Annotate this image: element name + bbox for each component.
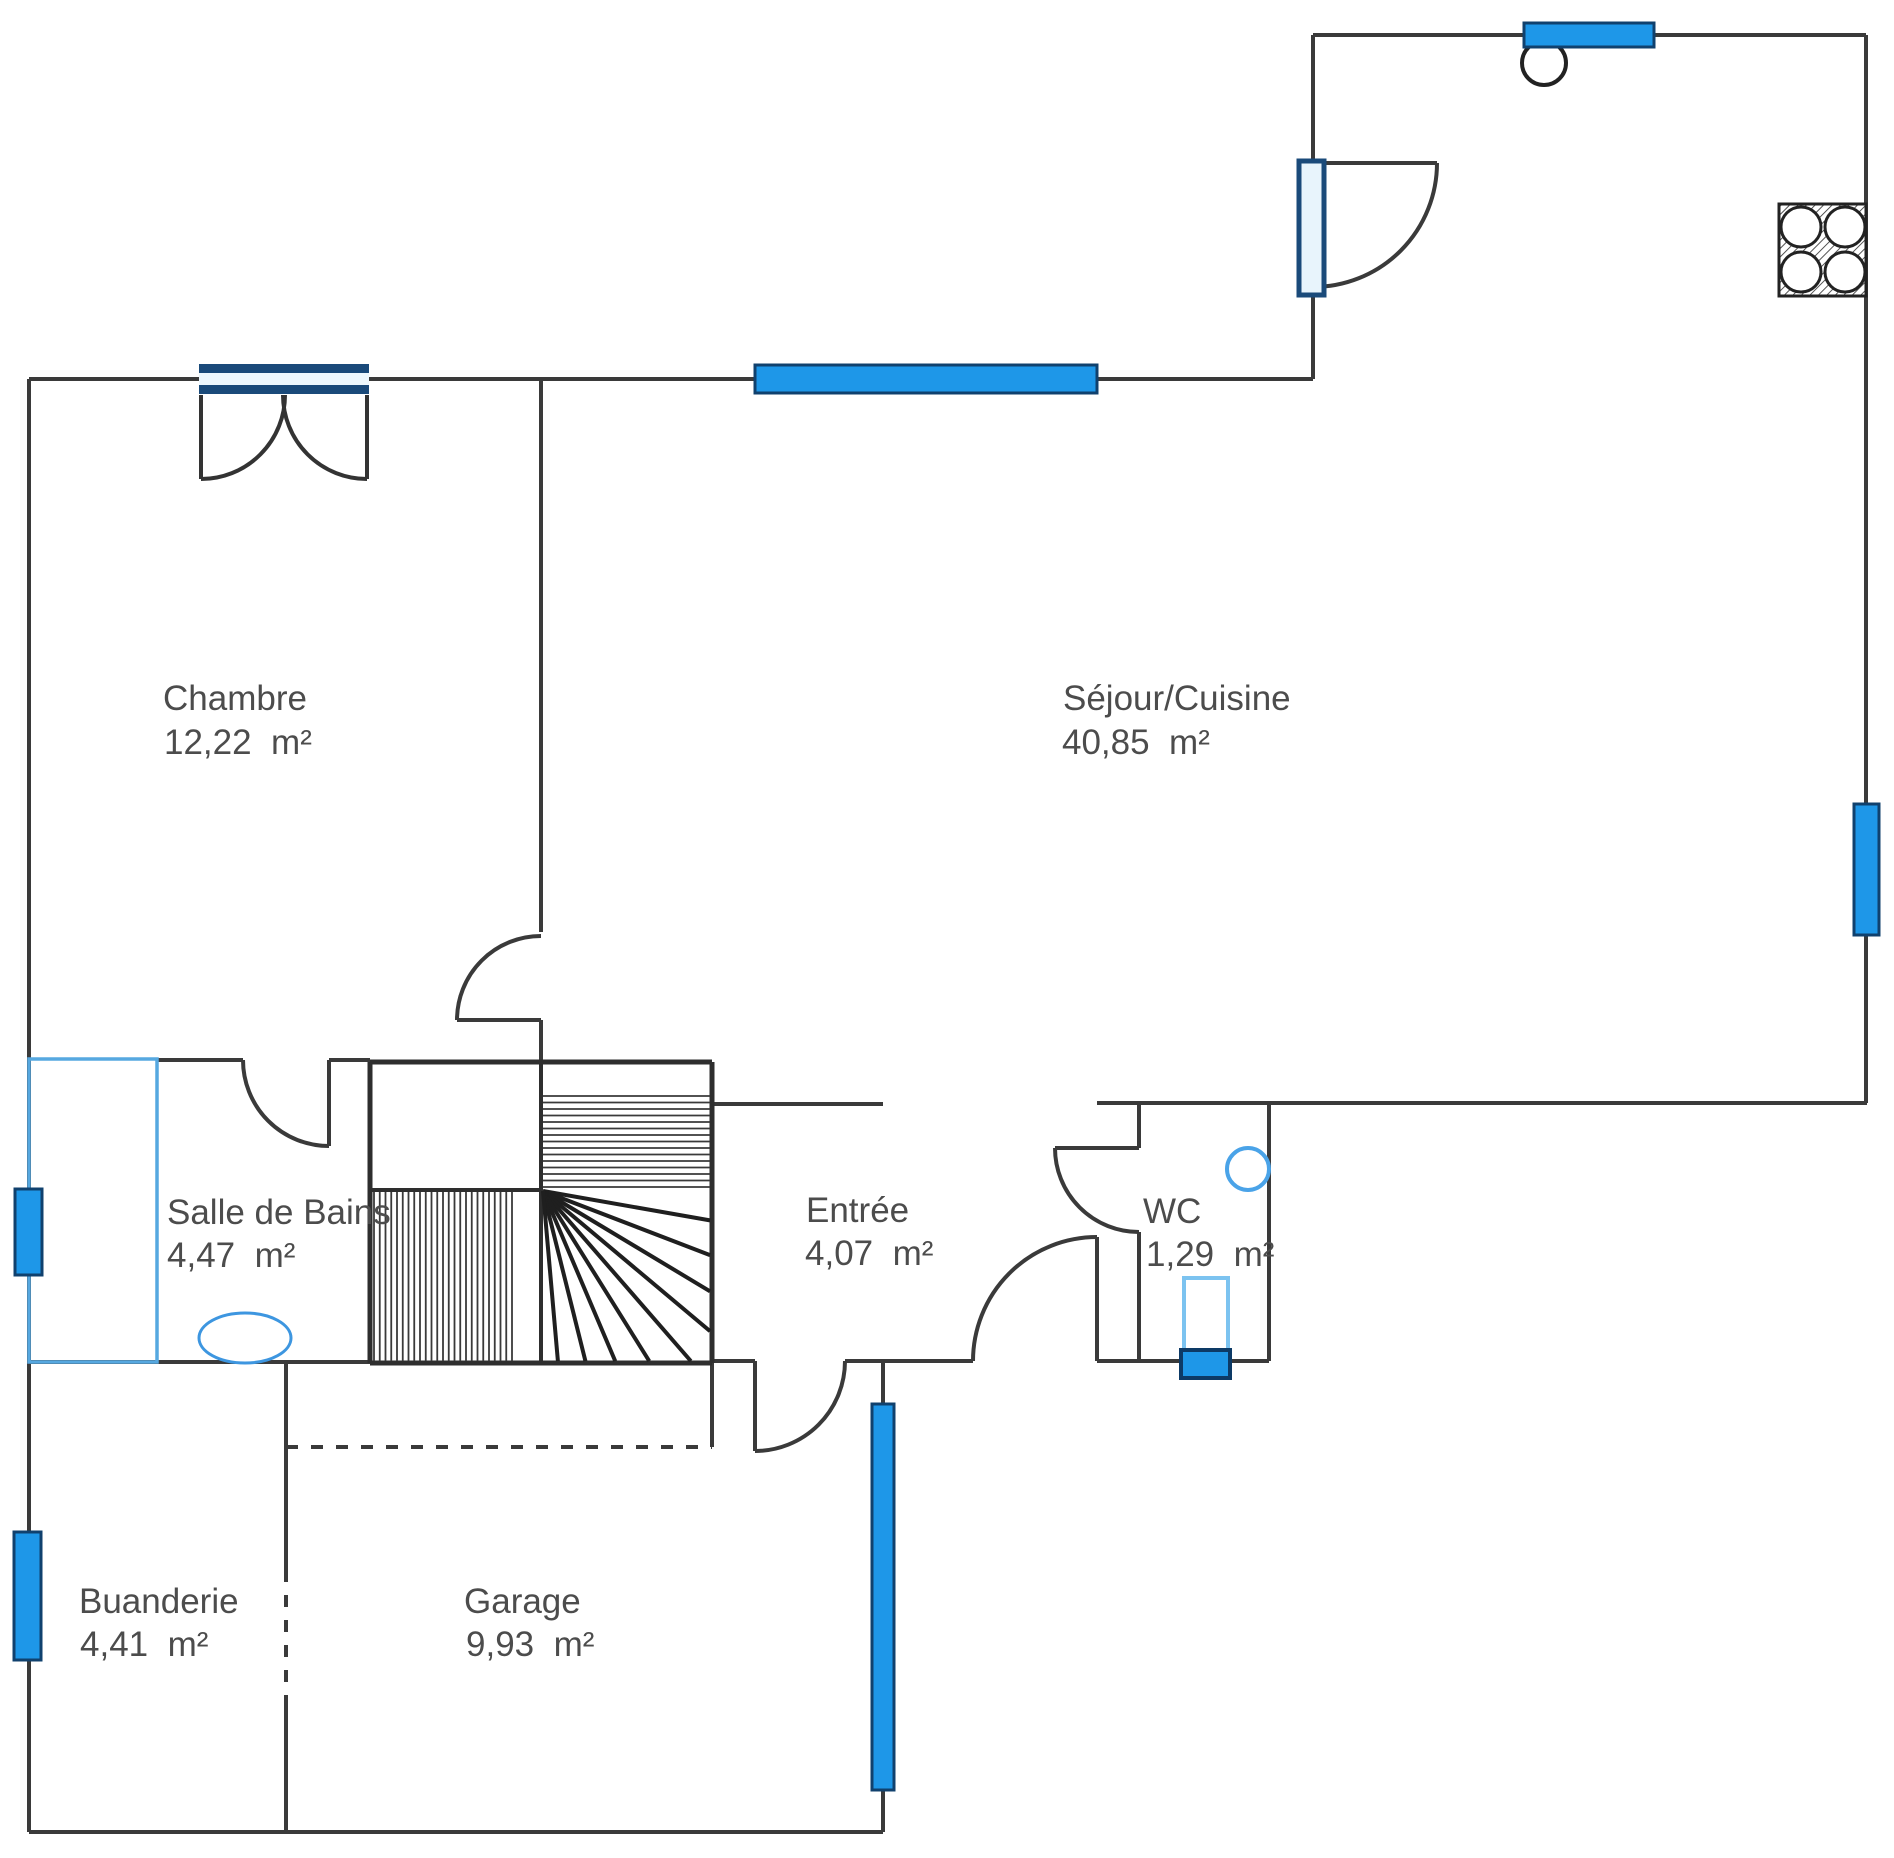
svg-text:40,85 m²: 40,85 m²	[1062, 723, 1210, 762]
svg-text:WC: WC	[1143, 1192, 1201, 1231]
svg-text:12,22 m²: 12,22 m²	[164, 723, 312, 762]
svg-text:Buanderie: Buanderie	[79, 1582, 239, 1621]
svg-text:4,41 m²: 4,41 m²	[80, 1625, 208, 1664]
svg-text:9,93 m²: 9,93 m²	[466, 1625, 594, 1664]
svg-text:Séjour/Cuisine: Séjour/Cuisine	[1063, 679, 1291, 718]
svg-text:Garage: Garage	[464, 1582, 581, 1621]
svg-text:4,47 m²: 4,47 m²	[167, 1236, 295, 1275]
svg-text:1,29 m²: 1,29 m²	[1146, 1235, 1274, 1274]
svg-text:Salle de Bains: Salle de Bains	[167, 1193, 391, 1232]
svg-text:4,07 m²: 4,07 m²	[805, 1234, 933, 1273]
svg-text:Entrée: Entrée	[806, 1191, 909, 1230]
svg-text:Chambre: Chambre	[163, 679, 307, 718]
